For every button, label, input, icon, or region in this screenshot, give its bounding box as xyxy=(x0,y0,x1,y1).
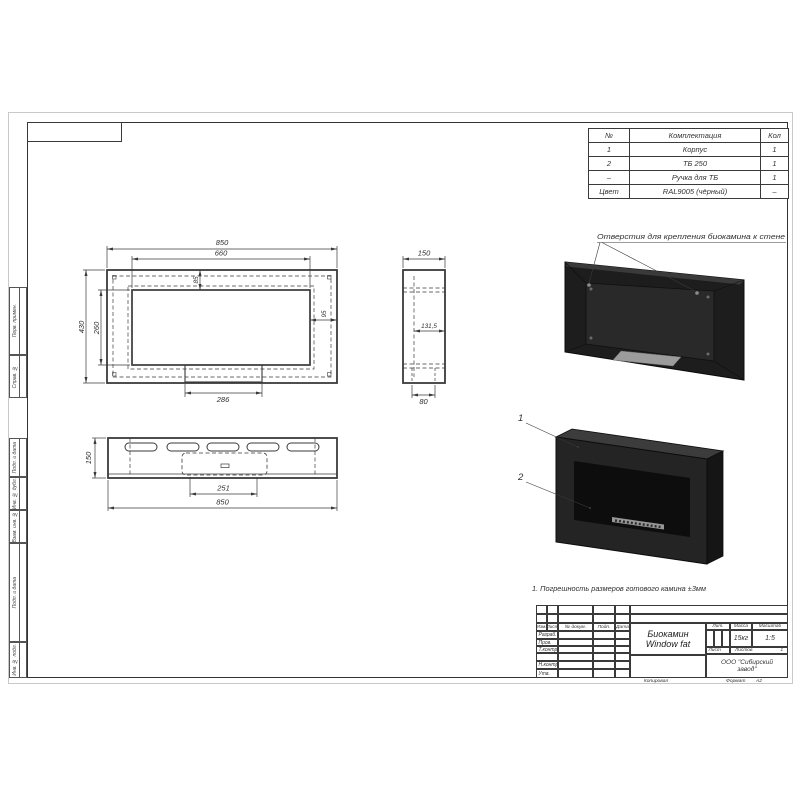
mass-header: Масса xyxy=(730,623,752,630)
format-value: А2 xyxy=(756,679,762,684)
company-cell: ООО "Сибирский завод" xyxy=(706,654,788,678)
sheets-cell: Листов 1 xyxy=(730,647,788,654)
role-empty-cell xyxy=(558,669,593,678)
drawing-sheet-page: { "sheet": { "margin_labels": ["Перв. пр… xyxy=(0,0,800,800)
margin-box-sprav-no: Справ. № xyxy=(9,355,27,398)
margin-box-podp-data-1: Подп. и дата xyxy=(9,438,27,477)
lit-header: Лит. xyxy=(706,623,730,630)
scale-header: Масштаб xyxy=(752,623,788,630)
doc-title-cell: Биокамин Window fat xyxy=(630,623,706,655)
role-empty-cell xyxy=(593,646,615,653)
parts-cell: RAL9005 (чёрный) xyxy=(629,185,760,198)
revision-cell xyxy=(547,614,558,623)
parts-cell: 1 xyxy=(760,143,788,156)
mass-value: 15кг xyxy=(730,630,752,647)
margin-box-podp-data-2: Подп. и дата xyxy=(9,543,27,642)
role-empty-cell xyxy=(593,639,615,646)
revision-cell xyxy=(536,605,547,614)
margin-box-inv-dubl: Инв. № дубл. xyxy=(9,477,27,510)
revision-cell xyxy=(558,605,593,614)
sheet-label: Лист xyxy=(706,647,730,654)
designation-cell xyxy=(630,614,788,623)
lit-subcell xyxy=(714,630,722,647)
col-header-podp: Подп. xyxy=(593,623,615,631)
role-empty-cell xyxy=(558,646,593,653)
col-header-docnum: № докум. xyxy=(558,623,593,631)
margin-label: Подп. и дата xyxy=(12,577,18,608)
role-empty-cell xyxy=(615,669,630,678)
parts-cell: ТБ 250 xyxy=(629,157,760,170)
role-empty-cell xyxy=(558,631,593,639)
role-utv: Утв. xyxy=(536,669,558,678)
margin-label: Подп. и дата xyxy=(12,442,18,473)
parts-cell: Цвет xyxy=(589,185,629,198)
role-empty-cell xyxy=(558,661,593,669)
parts-table-row: – Ручка для ТБ 1 xyxy=(589,170,788,184)
parts-table-row: Цвет RAL9005 (чёрный) – xyxy=(589,184,788,198)
margin-box-inv-podl: Инв. № подл. xyxy=(9,642,27,678)
parts-table: № Комплектация Кол 1 Корпус 1 2 ТБ 250 1… xyxy=(588,128,789,199)
role-empty-cell xyxy=(615,661,630,669)
parts-header-name: Комплектация xyxy=(629,129,760,142)
revision-cell xyxy=(536,614,547,623)
role-empty-cell xyxy=(615,639,630,646)
top-left-stamp-box xyxy=(27,122,122,142)
margin-label: Взам. инв. № xyxy=(12,511,18,542)
role-tkontr: Т.контр. xyxy=(536,646,558,653)
role-empty-cell xyxy=(615,653,630,661)
sheets-value: 1 xyxy=(780,648,783,653)
drawing-frame xyxy=(27,122,788,678)
role-empty-cell xyxy=(593,669,615,678)
format-label: Формат xyxy=(726,679,745,684)
col-header-list: Лист xyxy=(547,623,558,631)
margin-box-perv-primen: Перв. примен. xyxy=(9,287,27,355)
lit-subcell xyxy=(722,630,730,647)
copied-label: Копировал xyxy=(618,679,694,684)
parts-cell: Ручка для ТБ xyxy=(629,171,760,184)
parts-cell: Корпус xyxy=(629,143,760,156)
parts-cell: – xyxy=(760,185,788,198)
parts-cell: – xyxy=(589,171,629,184)
revision-cell xyxy=(593,614,615,623)
parts-table-row: 1 Корпус 1 xyxy=(589,142,788,156)
parts-cell: 1 xyxy=(589,143,629,156)
role-empty-cell xyxy=(593,631,615,639)
revision-cell xyxy=(547,605,558,614)
role-nkontr: Н.контр. xyxy=(536,661,558,669)
margin-label: Инв. № подл. xyxy=(12,644,18,676)
parts-table-header-row: № Комплектация Кол xyxy=(589,129,788,142)
margin-label: Инв. № дубл. xyxy=(12,478,18,509)
role-empty-cell xyxy=(593,653,615,661)
parts-cell: 2 xyxy=(589,157,629,170)
parts-table-row: 2 ТБ 250 1 xyxy=(589,156,788,170)
role-empty-cell xyxy=(615,646,630,653)
doc-title-line1: Биокамин xyxy=(647,629,688,639)
material-cell xyxy=(630,655,706,678)
parts-header-qty: Кол xyxy=(760,129,788,142)
revision-cell xyxy=(593,605,615,614)
role-empty-cell xyxy=(615,631,630,639)
margin-box-vzam-inv: Взам. инв. № xyxy=(9,510,27,543)
parts-cell: 1 xyxy=(760,171,788,184)
col-header-data: Дата xyxy=(615,623,630,631)
role-empty-cell xyxy=(558,653,593,661)
designation-cell xyxy=(630,605,788,614)
col-header-izm: Изм. xyxy=(536,623,547,631)
doc-title-line2: Window fat xyxy=(646,639,690,649)
revision-cell xyxy=(615,605,630,614)
role-empty-cell xyxy=(558,639,593,646)
revision-cell xyxy=(558,614,593,623)
margin-label: Справ. № xyxy=(12,365,18,388)
margin-label: Перв. примен. xyxy=(12,304,18,337)
scale-value: 1:5 xyxy=(752,630,788,647)
parts-header-number: № xyxy=(589,129,629,142)
role-razrab: Разраб. xyxy=(536,631,558,639)
role-empty-row xyxy=(536,653,558,661)
sheets-label: Листов xyxy=(735,648,752,653)
parts-cell: 1 xyxy=(760,157,788,170)
title-block: Изм. Лист № докум. Подп. Дата Разраб. Пр… xyxy=(536,605,788,678)
role-prov: Пров. xyxy=(536,639,558,646)
revision-cell xyxy=(615,614,630,623)
lit-subcell xyxy=(706,630,714,647)
role-empty-cell xyxy=(593,661,615,669)
